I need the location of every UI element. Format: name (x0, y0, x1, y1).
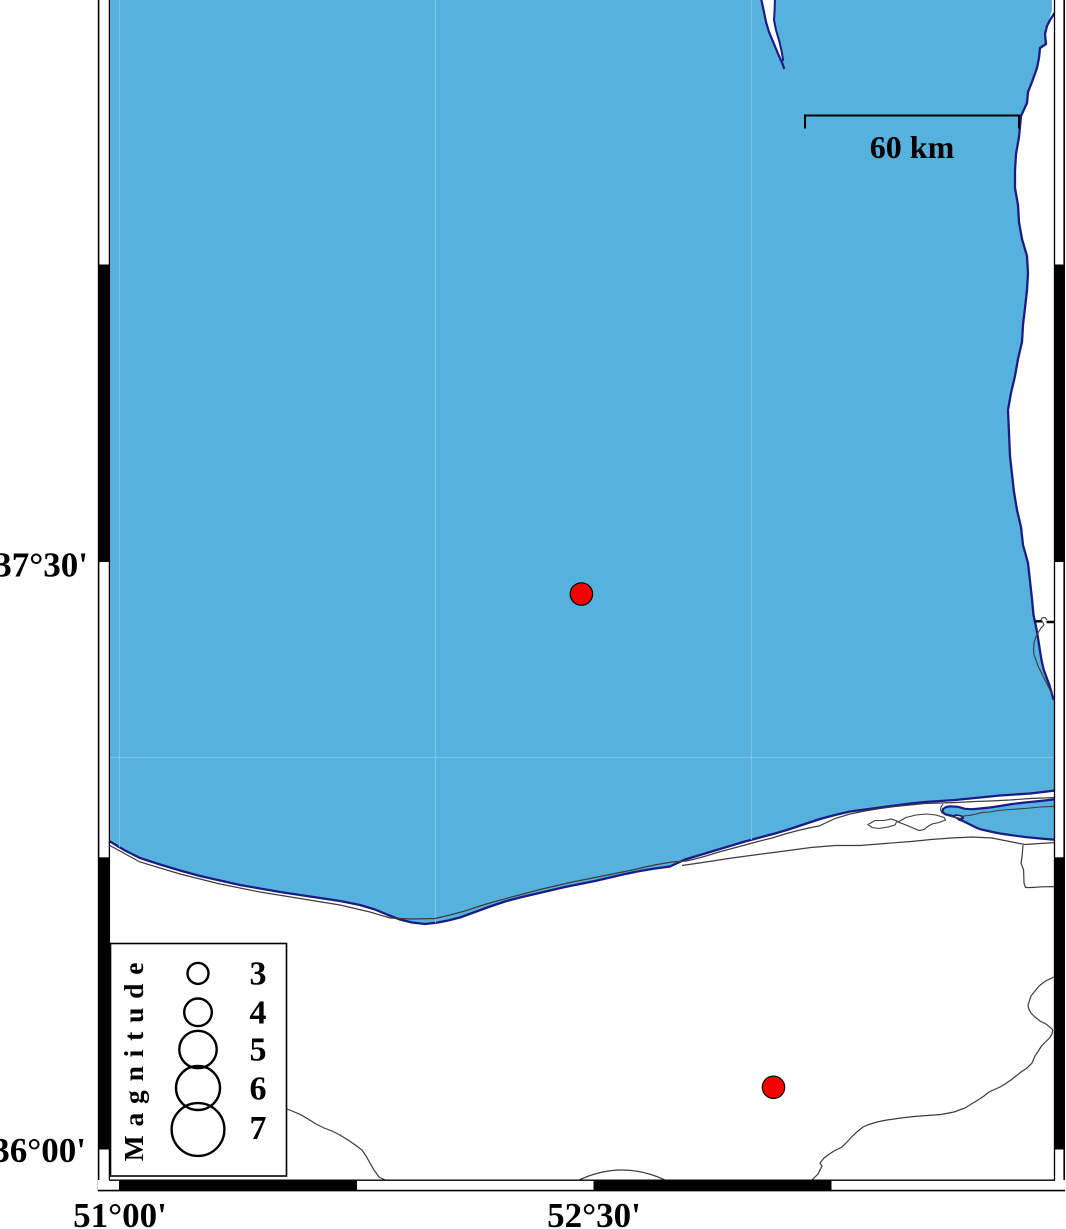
svg-text:3: 3 (250, 956, 267, 993)
svg-text:37°30': 37°30' (0, 546, 88, 585)
svg-text:51°00': 51°00' (73, 1196, 167, 1229)
svg-text:5: 5 (250, 1032, 267, 1069)
svg-text:52°30': 52°30' (547, 1196, 641, 1229)
svg-text:36°00': 36°00' (0, 1131, 86, 1170)
svg-text:7: 7 (250, 1110, 267, 1147)
svg-text:60 km: 60 km (870, 129, 955, 165)
svg-text:Magnitude: Magnitude (118, 954, 149, 1162)
svg-text:4: 4 (250, 995, 267, 1032)
svg-text:6: 6 (250, 1071, 267, 1108)
